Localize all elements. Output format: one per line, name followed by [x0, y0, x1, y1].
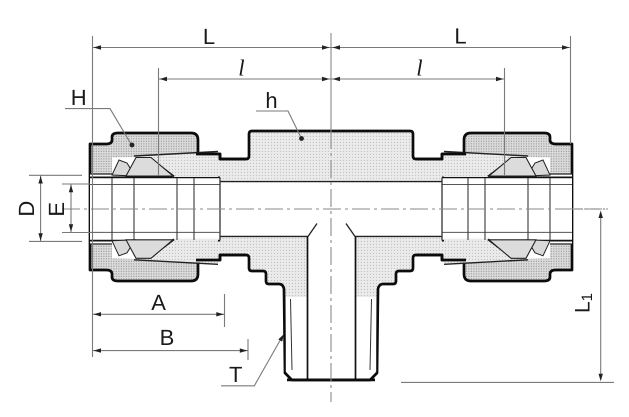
- svg-text:D: D: [14, 201, 39, 217]
- svg-text:l: l: [416, 56, 422, 81]
- svg-text:h: h: [265, 88, 277, 113]
- svg-text:B: B: [160, 325, 175, 350]
- svg-text:T: T: [229, 362, 242, 387]
- svg-text:H: H: [71, 85, 87, 110]
- svg-text:l: l: [238, 56, 244, 81]
- svg-text:L: L: [454, 24, 466, 49]
- svg-text:E: E: [44, 202, 69, 217]
- svg-text:L: L: [203, 24, 215, 49]
- svg-text:A: A: [151, 290, 166, 315]
